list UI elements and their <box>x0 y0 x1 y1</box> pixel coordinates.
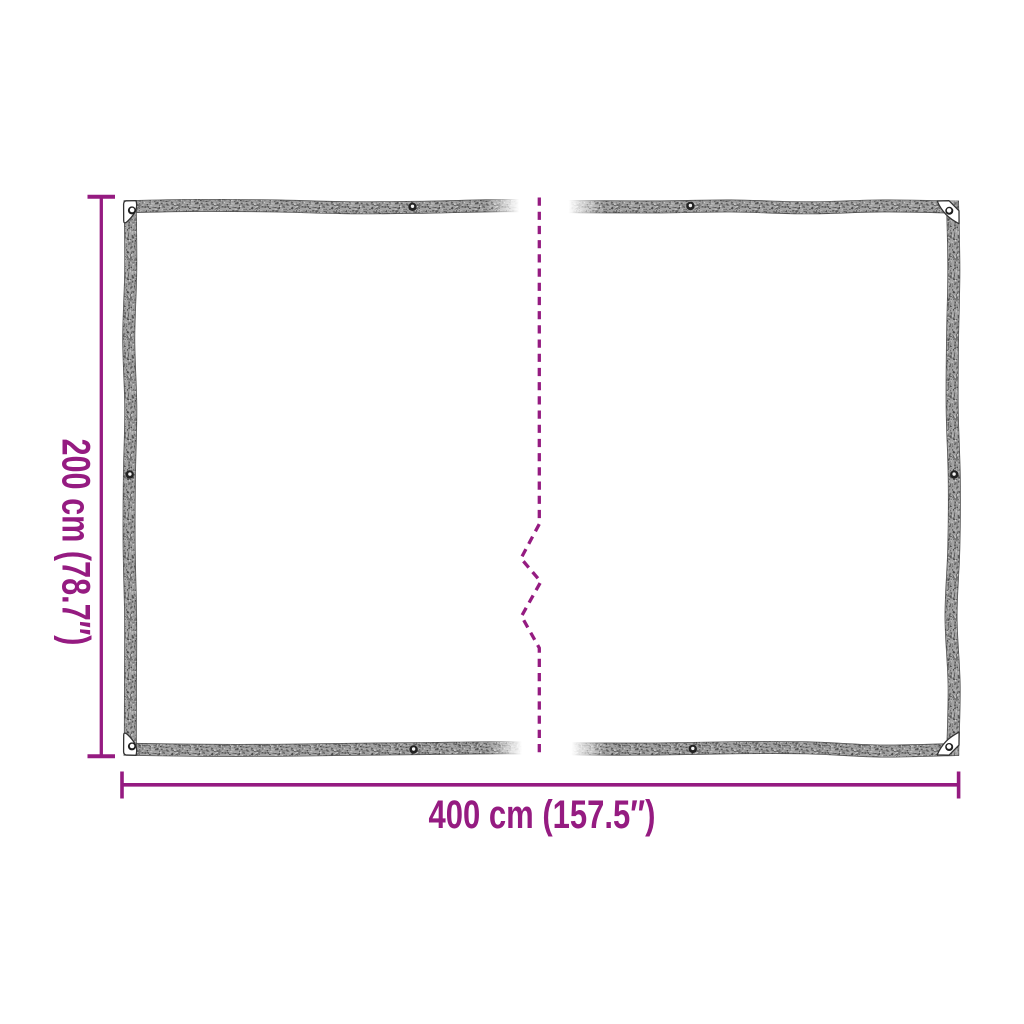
svg-text:400 cm (157.5″): 400 cm (157.5″) <box>429 793 656 837</box>
svg-text:200 cm (78.7″): 200 cm (78.7″) <box>53 439 97 646</box>
